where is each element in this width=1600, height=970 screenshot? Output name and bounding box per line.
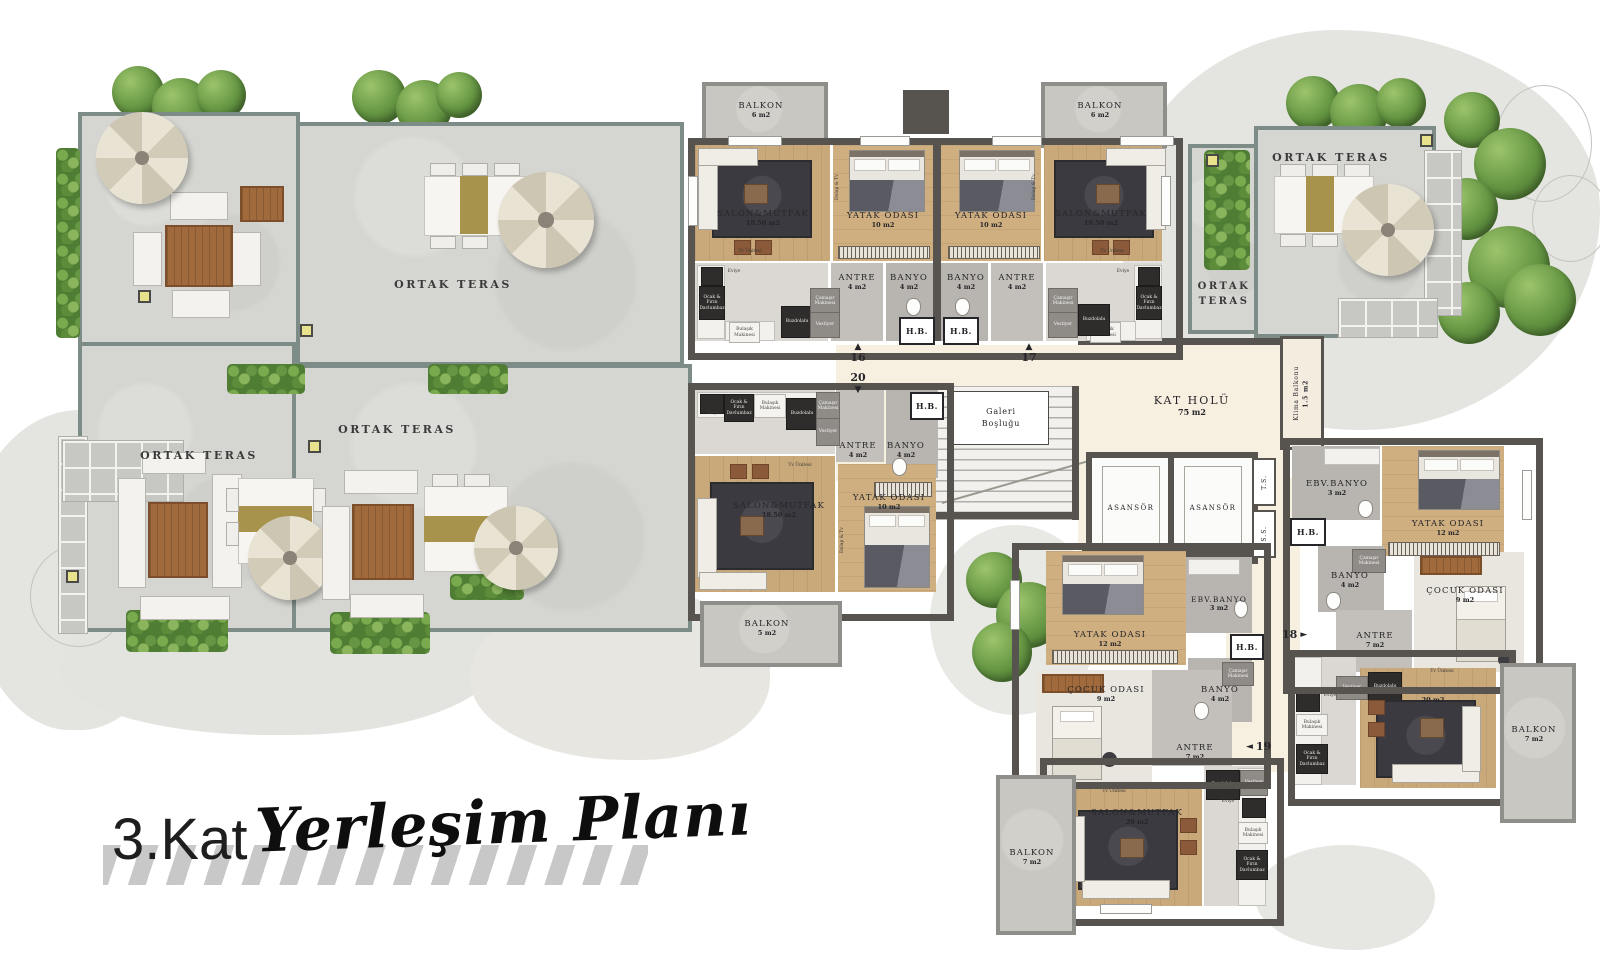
duvet xyxy=(960,180,1034,211)
shaft-ts-label: T.S. xyxy=(1261,475,1268,490)
coffee-table xyxy=(744,184,768,204)
stove-oven: Ocak & Fırın Davlumbaz xyxy=(1236,850,1268,880)
cocuk-u19-label: ÇOCUK ODASI9 m2 xyxy=(1060,686,1152,702)
armchair xyxy=(752,464,769,479)
unit-number: 17 xyxy=(1021,352,1036,365)
patio-umbrella xyxy=(248,516,332,600)
unit-19-marker: ◄ 19 xyxy=(1246,740,1271,753)
unit-number: 20 xyxy=(850,372,865,385)
sink-label: Eviye xyxy=(721,270,747,275)
hedge xyxy=(1204,150,1250,270)
gallery-label-line1: Galeri xyxy=(986,406,1016,418)
sink xyxy=(1296,692,1320,712)
toilet xyxy=(1358,500,1373,518)
sink-label: Eviye xyxy=(1318,694,1342,699)
window xyxy=(728,136,782,146)
terrace-upper-mid xyxy=(296,122,684,366)
dishwasher: Bulaşık Makinesi xyxy=(729,322,760,343)
blanket xyxy=(1457,619,1505,661)
chair xyxy=(462,236,488,249)
terrace-label: ORTAK TERAS xyxy=(138,448,260,464)
elevator-2: ASANSÖR xyxy=(1168,452,1258,564)
tree xyxy=(1376,78,1426,128)
pillow xyxy=(964,159,996,171)
headboard xyxy=(850,151,924,157)
yatak-u20-label: YATAK ODASI10 m2 xyxy=(842,492,936,512)
arrow-down-icon: ▼ xyxy=(855,385,862,395)
duvet xyxy=(1063,584,1143,614)
bath-counter xyxy=(1188,559,1240,575)
armchair xyxy=(1180,840,1197,855)
window xyxy=(1522,470,1532,520)
hedge xyxy=(428,364,508,394)
terrace-label: ORTAK TERAS xyxy=(1194,274,1254,314)
cocuk-u18-label: ÇOCUK ODASI9 m2 xyxy=(1418,586,1512,604)
klima-label: Klima Balkonu 1.5 m2 xyxy=(1292,366,1311,421)
sink xyxy=(1242,798,1266,818)
window xyxy=(992,136,1042,146)
chair xyxy=(462,163,488,176)
dolap-tv-label: Dolap & Tv xyxy=(835,166,844,208)
unit-18-marker: 18 ► xyxy=(1282,628,1307,641)
unit-number: 16 xyxy=(850,352,865,365)
coffee-table-wood xyxy=(165,225,233,287)
pillow xyxy=(1068,564,1102,576)
terrace-lamp xyxy=(300,324,313,337)
arrow-left-icon: ◄ xyxy=(1246,742,1253,752)
lounge-seat xyxy=(172,290,230,318)
double-bed xyxy=(864,506,930,588)
headboard xyxy=(1419,451,1499,457)
armchair xyxy=(1368,722,1385,737)
antre-u17-label: ANTRE4 m2 xyxy=(991,272,1043,292)
klima-balkonu: Klima Balkonu 1.5 m2 xyxy=(1280,336,1324,450)
chair xyxy=(464,474,490,487)
elevator-label: ASANSÖR xyxy=(1190,504,1237,512)
kids-desk xyxy=(1420,556,1482,575)
balcony-u18-label: BALKON7 m2 xyxy=(1504,720,1564,748)
party-wall xyxy=(933,145,941,341)
terrace-label: ORTAK TERAS xyxy=(392,277,514,293)
terrace-lamp xyxy=(308,440,321,453)
lounge-seat xyxy=(118,478,146,588)
window xyxy=(1010,580,1020,630)
stove-oven: Ocak & Fırın Davlumbaz xyxy=(699,286,725,320)
table-runner xyxy=(1306,176,1334,232)
fridge: Buzdolabı xyxy=(781,306,813,338)
banyo-u16-label: BANYO4 m2 xyxy=(880,272,938,292)
pouf xyxy=(1102,752,1117,767)
floor-plan-canvas: ORTAK TERAS ORTAK TERAS ORTAK TERAS ORTA… xyxy=(0,0,1600,970)
elevator-label: ASANSÖR xyxy=(1108,504,1155,512)
chair xyxy=(226,488,239,512)
sink-label: Eviye xyxy=(1110,270,1136,275)
duvet xyxy=(1419,479,1499,509)
yatak-u16-label: YATAK ODASI10 m2 xyxy=(834,210,932,230)
shaft-ss-label: S.S. xyxy=(1261,526,1268,542)
toilet xyxy=(892,458,907,476)
window xyxy=(688,176,698,226)
gallery-void: Galeri Boşluğu xyxy=(953,391,1049,445)
stove-oven: Ocak & Fırın Davlumbaz xyxy=(724,394,754,422)
pillow xyxy=(1460,459,1494,471)
coffee-table xyxy=(1420,718,1444,738)
unit-16-marker: ▲ 16 xyxy=(843,342,873,365)
duvet xyxy=(865,545,929,587)
plan-title: Yerleşim Planı xyxy=(254,779,753,866)
unit-number: 18 xyxy=(1282,628,1297,641)
lounge-seat xyxy=(170,192,228,220)
pillow xyxy=(869,515,897,527)
chair xyxy=(1280,234,1306,247)
window xyxy=(1100,904,1152,914)
washing-machine: Çamaşır Makinesi xyxy=(816,392,840,420)
hb-niche-u16: H.B. xyxy=(899,317,935,345)
tv-unit-label: Tv Ünitesi xyxy=(778,464,822,469)
terrace-lamp xyxy=(138,290,151,303)
antre-u18-label: ANTRE7 m2 xyxy=(1344,630,1406,650)
yatak-u17-label: YATAK ODASI10 m2 xyxy=(942,210,1040,230)
dishwasher: Bulaşık Makinesi xyxy=(754,394,786,418)
hedge xyxy=(227,364,305,394)
tree xyxy=(436,72,482,118)
window xyxy=(1161,176,1171,226)
pillow xyxy=(854,159,886,171)
floor-title: 3.Kat xyxy=(112,806,247,873)
stair-wall xyxy=(935,512,1079,519)
sofa xyxy=(1082,880,1170,899)
balcony-u19-label: BALKON7 m2 xyxy=(1001,843,1063,871)
banyo-u18-label: BANYO4 m2 xyxy=(1320,570,1380,590)
terrace-label: ORTAK TERAS xyxy=(336,422,458,438)
dishwasher: Bulaşık Makinesi xyxy=(1238,822,1268,844)
coat-closet: Vestiyer xyxy=(1048,312,1078,338)
patio-umbrella xyxy=(474,506,558,590)
banyo-u20-label: BANYO4 m2 xyxy=(880,440,932,460)
lounge-seat xyxy=(140,596,230,620)
arrow-right-icon: ► xyxy=(1300,630,1307,640)
lounge-seat xyxy=(133,232,162,286)
headboard xyxy=(960,151,1034,157)
tree xyxy=(1504,264,1576,336)
double-bed xyxy=(1062,555,1144,615)
pillow xyxy=(1424,459,1458,471)
lounge-seat xyxy=(344,470,418,494)
hall-label: KAT HOLÜ 75 m2 xyxy=(1140,390,1244,422)
antre-u20-label: ANTRE4 m2 xyxy=(832,440,884,460)
side-table-wood xyxy=(240,186,284,222)
stone-pavers xyxy=(1338,298,1438,338)
gallery-label-line2: Boşluğu xyxy=(982,418,1020,430)
ebvbanyo-u19-label: EBV.BANYO3 m2 xyxy=(1188,594,1250,614)
double-bed xyxy=(959,150,1035,212)
pillow xyxy=(1060,711,1094,722)
toilet xyxy=(955,298,970,316)
window xyxy=(1120,136,1174,146)
sofa xyxy=(699,572,767,590)
hedge xyxy=(56,148,80,338)
double-bed xyxy=(849,150,925,212)
blanket xyxy=(1053,738,1101,779)
duvet xyxy=(850,180,924,211)
sink xyxy=(701,267,723,286)
chair xyxy=(494,163,520,176)
coffee-table-wood xyxy=(352,504,414,580)
shadow-blob xyxy=(1255,845,1435,950)
hb-niche-u17: H.B. xyxy=(943,317,979,345)
patio-umbrella xyxy=(498,172,594,268)
double-bed xyxy=(1418,450,1500,510)
patio-umbrella xyxy=(1342,184,1434,276)
sofa xyxy=(697,498,717,578)
chair xyxy=(430,236,456,249)
toilet xyxy=(1326,592,1341,610)
shaft-block xyxy=(903,90,949,134)
antre-u19-label: ANTRE7 m2 xyxy=(1164,742,1226,762)
fridge: Buzdolabı xyxy=(1078,304,1110,336)
pillow xyxy=(1104,564,1138,576)
chair xyxy=(1312,234,1338,247)
terrace-label: ORTAK TERAS xyxy=(1270,150,1392,166)
ebvbanyo-u18-label: EBV.BANYO3 m2 xyxy=(1298,478,1376,498)
hedge xyxy=(330,612,430,654)
toilet xyxy=(1194,702,1209,720)
washing-machine: Çamaşır Makinesi xyxy=(1048,288,1078,314)
tv-unit-label: Tv Ünitesi xyxy=(1088,250,1136,255)
stove-oven: Ocak & Fırın Davlumbaz xyxy=(1296,744,1328,774)
shaft-ts: T.S. xyxy=(1252,458,1276,506)
wardrobe xyxy=(948,246,1040,259)
wardrobe xyxy=(838,246,930,259)
coat-closet: Vestiyer xyxy=(810,312,840,338)
salon-u18-label: SALON&MUTFAK20 m2 xyxy=(1378,684,1488,706)
sofa xyxy=(698,148,758,166)
lounge-seat xyxy=(232,232,261,286)
wardrobe xyxy=(1388,542,1500,556)
window xyxy=(860,136,910,146)
coffee-table-wood xyxy=(148,502,208,578)
dishwasher: Bulaşık Makinesi xyxy=(1296,714,1328,736)
elevator-1: ASANSÖR xyxy=(1086,452,1176,564)
balcony-u17-label: BALKON 6 m2 xyxy=(1050,96,1150,124)
washing-machine: Çamaşır Makinesi xyxy=(1222,662,1254,686)
terrace-lamp xyxy=(1206,154,1219,167)
single-bed xyxy=(1052,706,1102,780)
sink xyxy=(1138,267,1160,286)
dolap-tv-label: Dolap & Tv xyxy=(840,520,849,560)
chair xyxy=(430,163,456,176)
coffee-table xyxy=(1096,184,1120,204)
fridge: Buzdolabı xyxy=(1206,770,1240,800)
hb-niche-u18: H.B. xyxy=(1290,518,1326,546)
sofa xyxy=(1106,148,1166,166)
bath-counter xyxy=(1324,448,1380,465)
terrace-lamp xyxy=(66,570,79,583)
unit-17-marker: ▲ 17 xyxy=(1014,342,1044,365)
unit-20-marker: 20 ▼ xyxy=(843,372,873,395)
stair-wall xyxy=(1072,386,1079,520)
antre-u16-label: ANTRE4 m2 xyxy=(831,272,883,292)
salon-u20-label: SALON&MUTFAK18.50 m2 xyxy=(724,498,834,522)
dolap-tv-label: Dolap & Tv xyxy=(1032,166,1041,208)
armchair xyxy=(730,464,747,479)
toilet xyxy=(906,298,921,316)
balcony-u16-label: BALKON 6 m2 xyxy=(711,96,811,124)
tree xyxy=(972,622,1032,682)
coffee-table xyxy=(1120,838,1144,858)
tv-unit-label: Tv Ünitesi xyxy=(726,250,774,255)
table-runner xyxy=(460,176,488,234)
tv-unit-label: Tv Ünitesi xyxy=(1420,670,1464,675)
yatak-u18-label: YATAK ODASI12 m2 xyxy=(1396,518,1500,538)
banyo-u17-label: BANYO4 m2 xyxy=(937,272,995,292)
pillow xyxy=(888,159,920,171)
patio-umbrella xyxy=(96,112,188,204)
salon-u16-label: SALON&MUTFAK18.50 m2 xyxy=(700,206,826,230)
shaft-ss: S.S. xyxy=(1252,510,1276,558)
hb-niche-u19: H.B. xyxy=(1230,634,1264,660)
headboard xyxy=(1063,556,1143,562)
yatak-u19-label: YATAK ODASI12 m2 xyxy=(1058,630,1162,648)
salon-u19-label: SALON&MUTFAK20 m2 xyxy=(1082,806,1192,828)
pillow xyxy=(898,515,926,527)
unit-number: 19 xyxy=(1256,740,1271,753)
terrace-lamp xyxy=(1420,134,1433,147)
tv-unit-label: Tv Ünitesi xyxy=(1092,790,1136,795)
lounge-seat xyxy=(350,594,424,618)
sink-label: Eviye xyxy=(700,412,726,417)
stove-oven: Ocak & Fırın Davlumbaz xyxy=(1136,286,1162,320)
sofa xyxy=(1462,706,1481,772)
hb-niche-u20: H.B. xyxy=(910,392,944,420)
banyo-u19-label: BANYO4 m2 xyxy=(1190,684,1250,704)
coat-closet: Vestiyer xyxy=(1240,770,1268,796)
chair xyxy=(226,522,239,546)
salon-u17-label: SALON&MUTFAK18.50 m2 xyxy=(1038,206,1164,230)
lounge-seat xyxy=(322,506,350,600)
wardrobe xyxy=(1052,650,1178,664)
balcony-u20-label: BALKON5 m2 xyxy=(717,614,817,642)
pillow xyxy=(998,159,1030,171)
sink-label: Eviye xyxy=(1216,800,1240,805)
fridge: Buzdolabı xyxy=(786,398,818,430)
chair xyxy=(432,474,458,487)
